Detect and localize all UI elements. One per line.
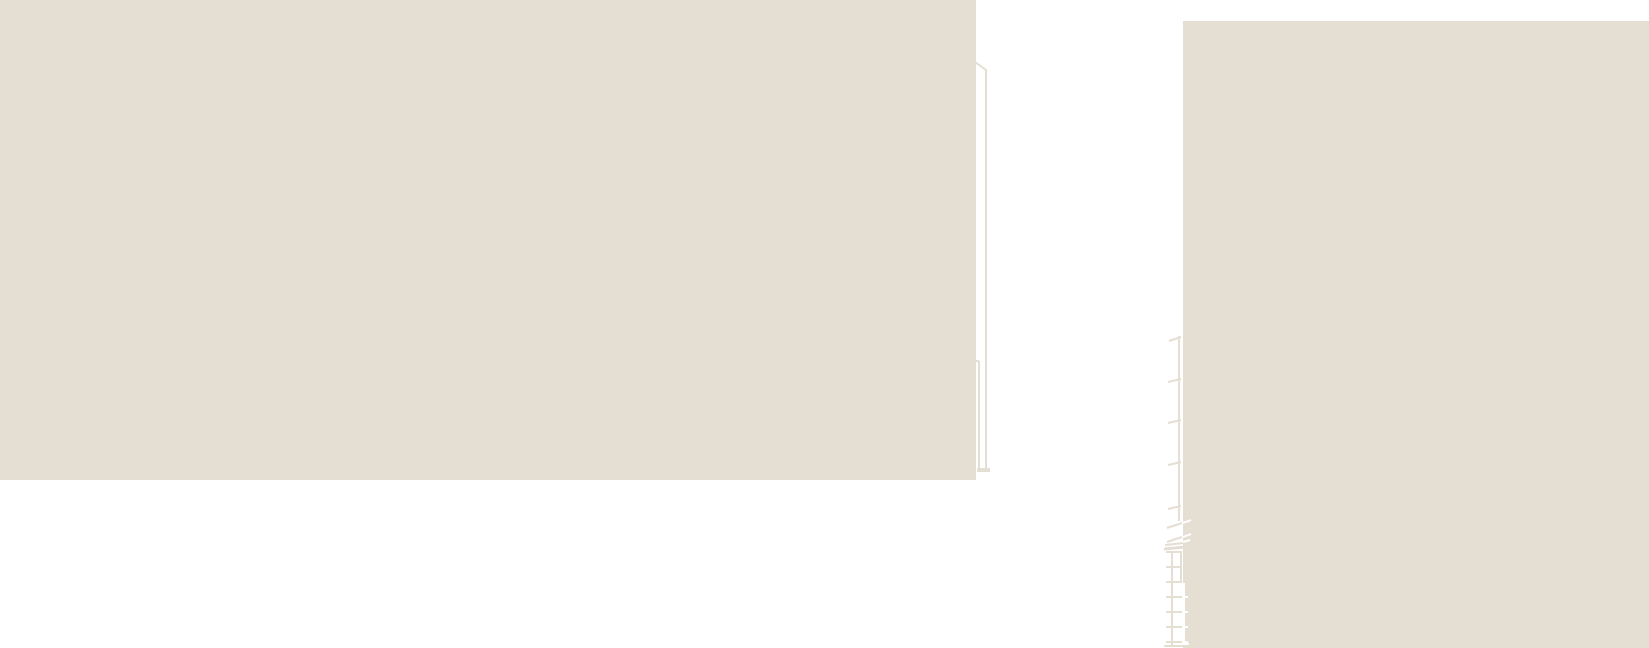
break-mark-lower — [1167, 537, 1182, 542]
elevation-drawing — [0, 0, 1649, 648]
drawing-canvas — [0, 0, 1649, 648]
hatch-stroke-1 — [1165, 543, 1184, 545]
right-wall-block — [1183, 21, 1649, 648]
downpipe-cap-diagonal — [975, 62, 986, 70]
hatch-stroke-2 — [1164, 547, 1185, 549]
break-mark-upper — [1167, 523, 1182, 528]
downpipe-foot — [977, 468, 990, 472]
left-wall-block — [0, 0, 976, 480]
